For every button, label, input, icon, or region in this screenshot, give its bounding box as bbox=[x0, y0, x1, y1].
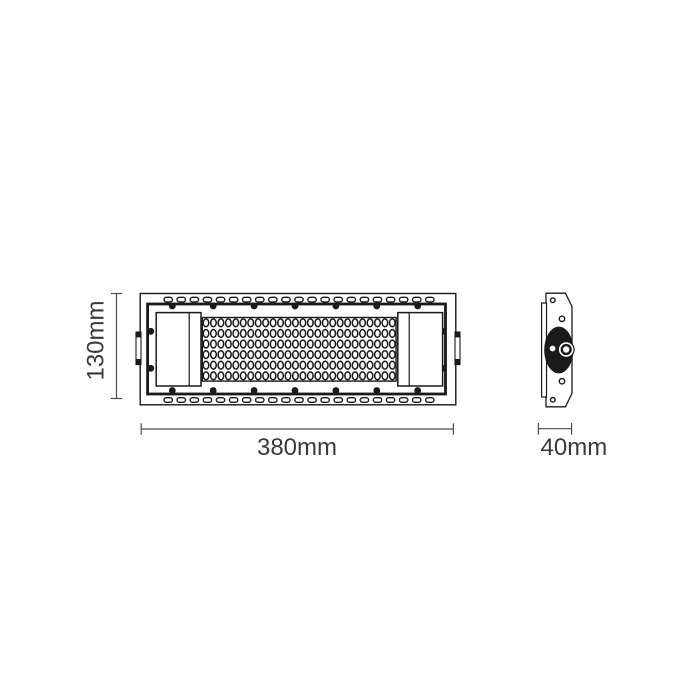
led-lens bbox=[322, 319, 328, 327]
screw-dot bbox=[147, 328, 154, 335]
vent-slot bbox=[373, 398, 381, 403]
led-lens bbox=[322, 330, 328, 338]
vent-slot bbox=[190, 297, 198, 302]
led-lens bbox=[360, 330, 366, 338]
led-lens bbox=[308, 361, 314, 369]
vent-slot bbox=[282, 398, 290, 403]
led-lens bbox=[352, 351, 358, 359]
led-lens bbox=[315, 319, 321, 327]
vent-slot bbox=[269, 297, 277, 302]
led-lens bbox=[315, 340, 321, 348]
led-lens bbox=[285, 361, 291, 369]
led-lens bbox=[226, 361, 232, 369]
screw-dot bbox=[210, 303, 217, 310]
screw-dot bbox=[147, 365, 154, 372]
led-lens bbox=[330, 361, 336, 369]
led-lens bbox=[263, 361, 269, 369]
vent-slot bbox=[295, 297, 303, 302]
led-lens bbox=[360, 319, 366, 327]
led-lens bbox=[352, 372, 358, 380]
led-lens bbox=[240, 361, 246, 369]
led-lens bbox=[367, 372, 373, 380]
vent-slot bbox=[242, 297, 250, 302]
led-lens bbox=[382, 330, 388, 338]
led-lens bbox=[240, 372, 246, 380]
vent-slot bbox=[347, 398, 355, 403]
led-lens bbox=[218, 340, 224, 348]
led-lens bbox=[226, 330, 232, 338]
vent-slot bbox=[321, 297, 329, 302]
screw-dot bbox=[292, 303, 299, 310]
vent-slot bbox=[386, 398, 394, 403]
mounting-tab-left bbox=[136, 332, 142, 365]
vent-slot bbox=[164, 297, 172, 302]
led-lens bbox=[285, 340, 291, 348]
led-lens bbox=[308, 340, 314, 348]
vent-slot bbox=[242, 398, 250, 403]
vent-slot bbox=[216, 398, 224, 403]
led-lens bbox=[352, 361, 358, 369]
width-dimension-label: 380mm bbox=[257, 434, 337, 461]
led-lens bbox=[382, 351, 388, 359]
depth-dimension: 40mm bbox=[538, 423, 607, 461]
led-lens bbox=[226, 351, 232, 359]
led-lens bbox=[345, 372, 351, 380]
led-lens bbox=[293, 319, 299, 327]
led-lens bbox=[218, 351, 224, 359]
led-lens bbox=[300, 319, 306, 327]
led-lens bbox=[211, 340, 217, 348]
led-lens bbox=[293, 361, 299, 369]
led-lens bbox=[315, 361, 321, 369]
led-lens bbox=[337, 351, 343, 359]
vent-slot bbox=[321, 398, 329, 403]
led-lens bbox=[367, 351, 373, 359]
vent-slots-bottom-row bbox=[164, 398, 434, 403]
led-lens bbox=[322, 361, 328, 369]
led-lens bbox=[248, 319, 254, 327]
screw-dot bbox=[169, 303, 176, 310]
led-lens bbox=[390, 372, 396, 380]
led-lens bbox=[270, 351, 276, 359]
led-lens bbox=[233, 330, 239, 338]
led-lens bbox=[345, 319, 351, 327]
led-lens bbox=[375, 351, 381, 359]
led-lens bbox=[300, 372, 306, 380]
led-lens bbox=[248, 330, 254, 338]
vent-slot bbox=[269, 398, 277, 403]
led-lens bbox=[248, 361, 254, 369]
led-lens bbox=[203, 319, 209, 327]
led-lens bbox=[300, 351, 306, 359]
led-lens bbox=[248, 340, 254, 348]
screw-dot bbox=[414, 387, 421, 394]
led-lens bbox=[345, 351, 351, 359]
vent-slot bbox=[347, 297, 355, 302]
led-lens bbox=[263, 330, 269, 338]
led-lens bbox=[285, 330, 291, 338]
height-dimension-label: 130mm bbox=[83, 300, 110, 380]
screw-dot bbox=[251, 303, 258, 310]
led-lens bbox=[345, 361, 351, 369]
vent-slot bbox=[177, 398, 185, 403]
vent-slot bbox=[360, 297, 368, 302]
led-lens bbox=[233, 361, 239, 369]
mounting-tab-right bbox=[455, 332, 461, 365]
screw-dot bbox=[210, 387, 217, 394]
vent-slot bbox=[282, 297, 290, 302]
led-lens bbox=[211, 319, 217, 327]
led-lens bbox=[337, 372, 343, 380]
led-lens bbox=[345, 340, 351, 348]
led-lens bbox=[308, 372, 314, 380]
screw-dot bbox=[292, 387, 299, 394]
vent-slot bbox=[360, 398, 368, 403]
depth-dimension-label: 40mm bbox=[541, 434, 608, 461]
end-cap-left bbox=[156, 313, 201, 386]
led-lens bbox=[375, 330, 381, 338]
led-lens bbox=[263, 319, 269, 327]
led-lens bbox=[390, 361, 396, 369]
vent-slot bbox=[426, 398, 434, 403]
led-lens bbox=[203, 340, 209, 348]
vent-slot bbox=[256, 297, 264, 302]
led-lens bbox=[390, 319, 396, 327]
led-lens bbox=[248, 351, 254, 359]
vent-slot bbox=[413, 398, 421, 403]
vent-slot bbox=[216, 297, 224, 302]
led-lens bbox=[278, 351, 284, 359]
vent-slot bbox=[399, 398, 407, 403]
led-lens bbox=[203, 351, 209, 359]
led-lens bbox=[218, 372, 224, 380]
led-lens bbox=[248, 372, 254, 380]
drawing-svg: 130mm 380mm 40mm bbox=[0, 0, 700, 700]
led-lens bbox=[233, 372, 239, 380]
led-lens bbox=[278, 372, 284, 380]
vent-slot bbox=[177, 297, 185, 302]
led-lens bbox=[270, 319, 276, 327]
led-lens bbox=[255, 340, 261, 348]
led-lens bbox=[226, 319, 232, 327]
vent-slot bbox=[413, 297, 421, 302]
vent-slot bbox=[426, 297, 434, 302]
led-lens bbox=[203, 330, 209, 338]
screw-dot bbox=[373, 303, 380, 310]
led-lens bbox=[270, 340, 276, 348]
led-lens bbox=[390, 351, 396, 359]
vent-slot bbox=[399, 297, 407, 302]
led-lens bbox=[375, 372, 381, 380]
width-dimension: 380mm bbox=[141, 423, 453, 461]
led-lens bbox=[337, 330, 343, 338]
vent-slot bbox=[334, 297, 342, 302]
vent-slot bbox=[295, 398, 303, 403]
led-lens bbox=[285, 351, 291, 359]
led-lens bbox=[315, 372, 321, 380]
vent-slot bbox=[229, 398, 237, 403]
led-lens bbox=[337, 340, 343, 348]
led-lens bbox=[255, 361, 261, 369]
led-lens bbox=[330, 351, 336, 359]
led-lens bbox=[255, 372, 261, 380]
led-lens bbox=[390, 330, 396, 338]
led-lens bbox=[211, 372, 217, 380]
screw-dot bbox=[333, 303, 340, 310]
led-lens bbox=[375, 319, 381, 327]
led-lens bbox=[322, 340, 328, 348]
screw-dot bbox=[414, 303, 421, 310]
led-lens bbox=[330, 319, 336, 327]
led-lens bbox=[375, 340, 381, 348]
led-lens bbox=[226, 340, 232, 348]
led-lens bbox=[367, 330, 373, 338]
vent-slot bbox=[334, 398, 342, 403]
led-lens bbox=[315, 351, 321, 359]
height-dimension: 130mm bbox=[83, 294, 123, 399]
led-lens bbox=[293, 351, 299, 359]
end-cap-right bbox=[398, 313, 443, 386]
led-lens bbox=[203, 372, 209, 380]
led-lens bbox=[382, 361, 388, 369]
led-lens bbox=[337, 361, 343, 369]
led-lens bbox=[255, 330, 261, 338]
led-lens bbox=[382, 372, 388, 380]
side-view bbox=[542, 293, 575, 407]
vent-slot bbox=[203, 297, 211, 302]
led-lens bbox=[218, 319, 224, 327]
led-lens bbox=[300, 340, 306, 348]
led-lens bbox=[233, 340, 239, 348]
vent-slot bbox=[256, 398, 264, 403]
led-lens bbox=[300, 361, 306, 369]
vent-slot bbox=[190, 398, 198, 403]
led-lens bbox=[226, 372, 232, 380]
vent-slot bbox=[386, 297, 394, 302]
led-lens bbox=[337, 319, 343, 327]
led-lens bbox=[367, 340, 373, 348]
led-lens bbox=[263, 351, 269, 359]
led-lens bbox=[278, 361, 284, 369]
led-lens bbox=[240, 330, 246, 338]
led-lens bbox=[382, 340, 388, 348]
led-lens bbox=[382, 319, 388, 327]
led-lens bbox=[203, 361, 209, 369]
led-lens bbox=[270, 372, 276, 380]
led-lens bbox=[360, 340, 366, 348]
led-lens bbox=[308, 319, 314, 327]
led-lens bbox=[218, 361, 224, 369]
vent-slot bbox=[373, 297, 381, 302]
led-lens bbox=[352, 319, 358, 327]
led-lens bbox=[211, 361, 217, 369]
led-lens bbox=[293, 340, 299, 348]
led-lens bbox=[285, 372, 291, 380]
led-lens bbox=[218, 330, 224, 338]
led-lens bbox=[375, 361, 381, 369]
hub-pin bbox=[550, 346, 556, 352]
led-lens bbox=[390, 340, 396, 348]
led-lens bbox=[278, 330, 284, 338]
screw-dot bbox=[251, 387, 258, 394]
led-lens bbox=[263, 340, 269, 348]
led-lens bbox=[345, 330, 351, 338]
led-lens bbox=[352, 340, 358, 348]
led-lens bbox=[233, 351, 239, 359]
screw-dot bbox=[169, 387, 176, 394]
led-lens bbox=[240, 340, 246, 348]
front-view bbox=[136, 294, 461, 405]
led-lens bbox=[367, 319, 373, 327]
led-lens bbox=[278, 319, 284, 327]
vent-slot bbox=[229, 297, 237, 302]
led-lens bbox=[211, 330, 217, 338]
led-lens bbox=[240, 351, 246, 359]
led-lens bbox=[308, 330, 314, 338]
led-lens bbox=[308, 351, 314, 359]
led-lens bbox=[240, 319, 246, 327]
led-lens bbox=[360, 361, 366, 369]
led-lens bbox=[211, 351, 217, 359]
vent-slot bbox=[203, 398, 211, 403]
led-lens bbox=[293, 372, 299, 380]
led-lens bbox=[322, 351, 328, 359]
led-lens bbox=[255, 351, 261, 359]
led-lens bbox=[360, 372, 366, 380]
led-lens bbox=[330, 372, 336, 380]
led-lens bbox=[255, 319, 261, 327]
vent-slot bbox=[308, 398, 316, 403]
led-lens bbox=[315, 330, 321, 338]
led-lens bbox=[278, 340, 284, 348]
screw-dot bbox=[333, 387, 340, 394]
led-lens bbox=[322, 372, 328, 380]
led-lens bbox=[330, 340, 336, 348]
led-lens bbox=[367, 361, 373, 369]
led-lens bbox=[285, 319, 291, 327]
led-lens bbox=[360, 351, 366, 359]
led-lens bbox=[352, 330, 358, 338]
led-panel bbox=[202, 318, 396, 382]
led-lens bbox=[300, 330, 306, 338]
vent-slots-top-row bbox=[164, 297, 434, 302]
led-lens bbox=[330, 330, 336, 338]
vent-slot bbox=[164, 398, 172, 403]
screw-dot bbox=[373, 387, 380, 394]
led-lens bbox=[293, 330, 299, 338]
vent-slot bbox=[308, 297, 316, 302]
led-lens bbox=[270, 361, 276, 369]
led-lens bbox=[233, 319, 239, 327]
technical-drawing-canvas: 130mm 380mm 40mm bbox=[0, 0, 700, 700]
led-lens bbox=[270, 330, 276, 338]
led-lens bbox=[263, 372, 269, 380]
